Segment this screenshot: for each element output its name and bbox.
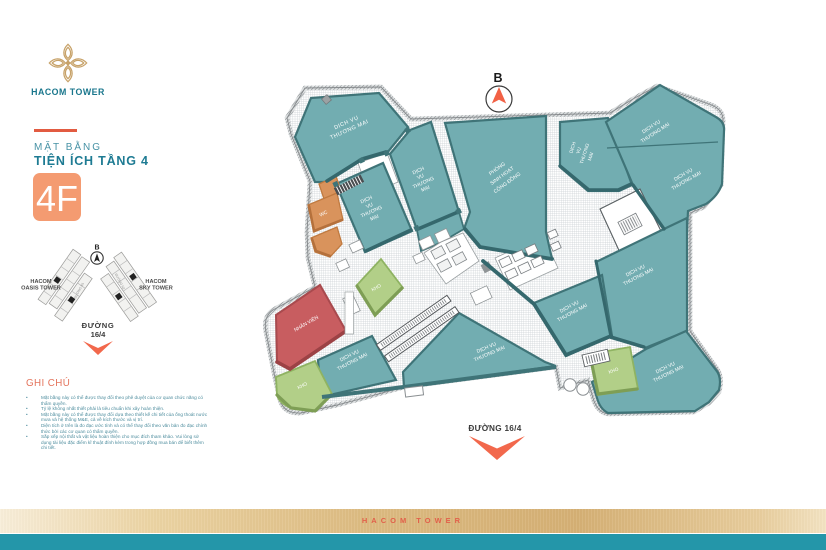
svg-text:ĐƯỜNG 16/4: ĐƯỜNG 16/4 xyxy=(468,422,521,433)
svg-text:B: B xyxy=(493,71,502,85)
